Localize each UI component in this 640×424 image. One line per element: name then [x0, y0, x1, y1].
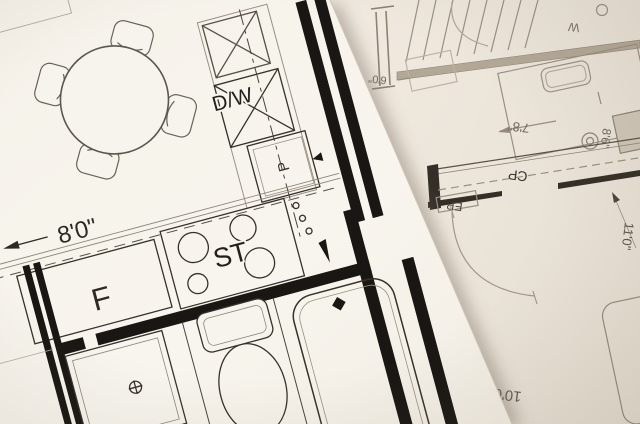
panel-label: EP: [446, 198, 464, 214]
pillow: [540, 60, 592, 93]
front-sheet: D/W P 8'0: [0, 0, 512, 424]
blueprint-scene: 7'8" 8'6" W 6'0": [0, 0, 640, 424]
dim-8-6-label: 8'6": [598, 128, 614, 149]
side-table: [600, 287, 640, 424]
fixture-circle: [597, 5, 608, 16]
stairs: [406, 0, 538, 62]
dim-7-8: 7'8": [498, 118, 556, 136]
dim-6-0-label: 6'0": [368, 72, 388, 86]
dim-11-0-label: 11'0": [619, 222, 637, 252]
closet-label: CP: [507, 167, 528, 185]
blueprint-photo: 7'8" 8'6" W 6'0": [0, 0, 640, 424]
closet: CP: [427, 138, 640, 210]
door-swing-top: [452, 2, 488, 46]
door-swing-lower: [450, 205, 537, 304]
bedroom-wall: [397, 40, 640, 80]
washer-label: W: [567, 20, 581, 35]
dim-11-0: 11'0": [612, 192, 637, 251]
